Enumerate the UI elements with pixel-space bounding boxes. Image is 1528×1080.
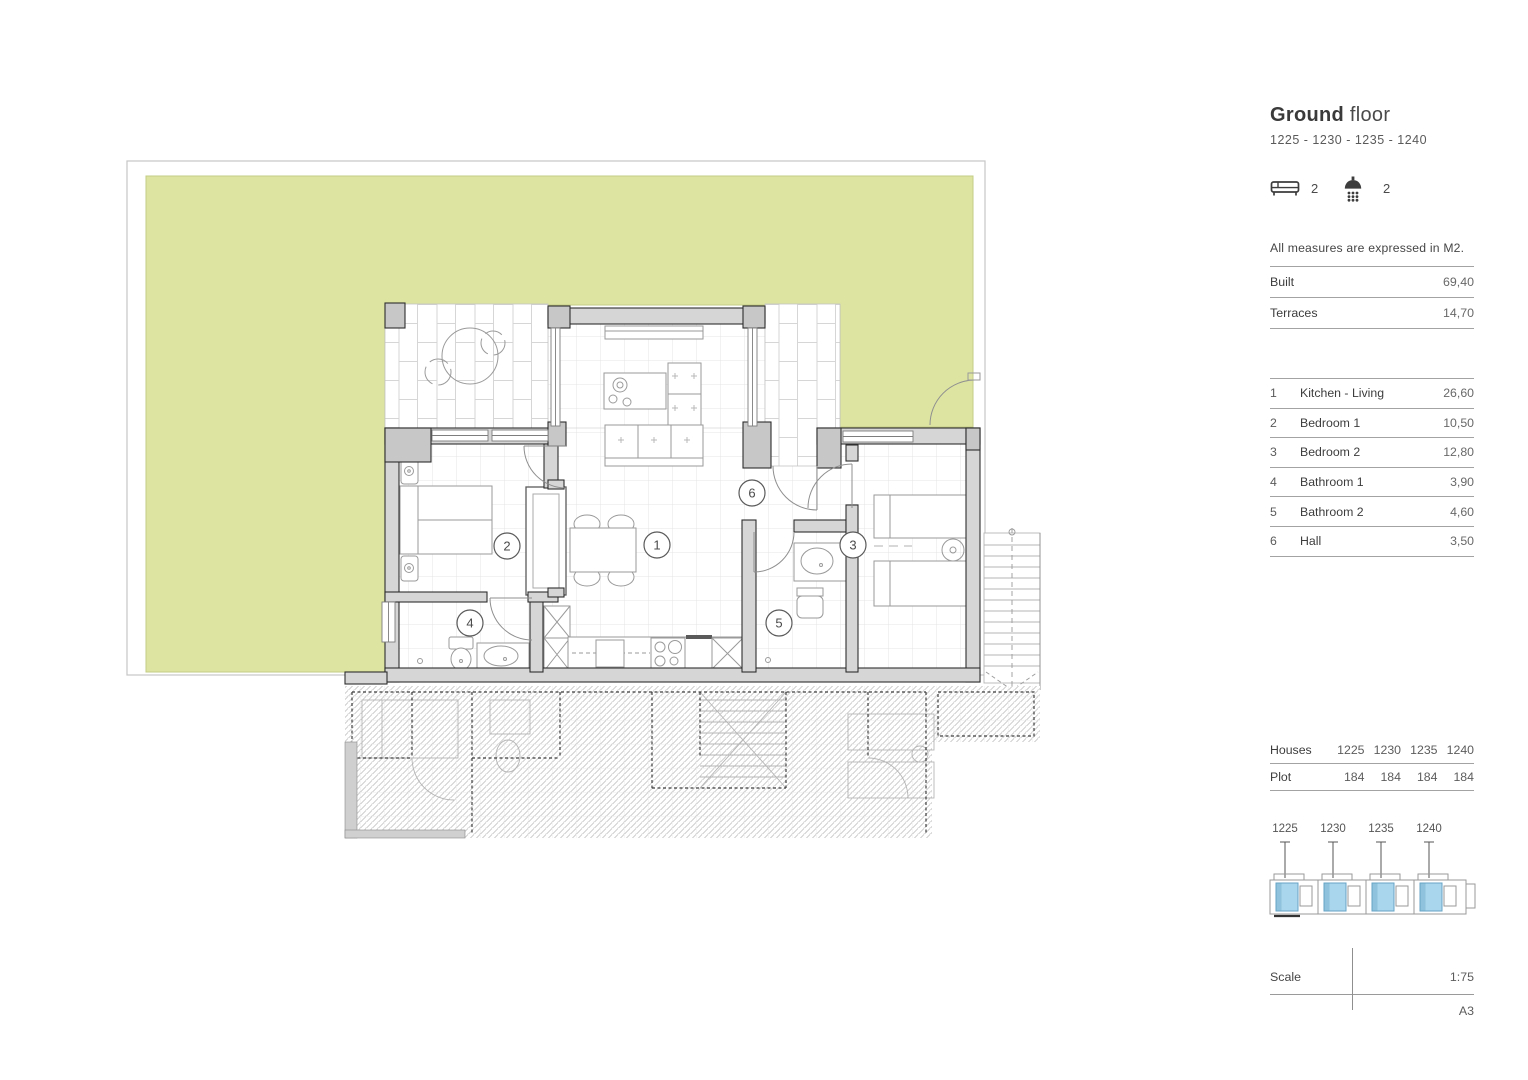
room-row: 5 Bathroom 2 4,60	[1270, 497, 1474, 527]
title-bold: Ground	[1270, 104, 1344, 126]
room-marker-1: 1	[653, 538, 660, 553]
room-marker-5: 5	[775, 616, 782, 631]
site-leader-lines	[1280, 842, 1434, 878]
room-marker-2: 2	[503, 539, 510, 554]
title-light: floor	[1350, 104, 1390, 126]
room-row: 4 Bathroom 1 3,90	[1270, 468, 1474, 498]
scale-divider	[1352, 948, 1353, 1010]
rooms-table: 1 Kitchen - Living 26,60 2 Bedroom 1 10,…	[1270, 378, 1474, 557]
room-row: 2 Bedroom 1 10,50	[1270, 409, 1474, 439]
scale-block: Scale 1:75 A3	[1270, 960, 1474, 1030]
site-label-1230: 1230	[1320, 823, 1346, 835]
scale-value: 1:75	[1450, 970, 1474, 984]
summary-row-built: Built 69,40	[1270, 267, 1474, 298]
site-label-1225: 1225	[1272, 823, 1298, 835]
bedrooms-count: 2	[1311, 181, 1318, 196]
room-marker-6: 6	[748, 486, 755, 501]
room-marker-3: 3	[849, 538, 856, 553]
features-row: 2 2	[1270, 176, 1474, 202]
page-title: Ground floor	[1270, 104, 1474, 126]
site-key-plan: 1225 1230 1235 1240	[1264, 820, 1480, 926]
site-label-1235: 1235	[1368, 823, 1394, 835]
scale-label: Scale	[1270, 970, 1301, 984]
adjacent-unit-hatched	[345, 686, 1040, 838]
houses-table: Houses 1225 1230 1235 1240 Plot 184 184 …	[1270, 737, 1474, 791]
plot-row: Plot 184 184 184 184	[1270, 764, 1474, 791]
sheet-size: A3	[1270, 995, 1474, 1018]
site-label-1240: 1240	[1416, 823, 1442, 835]
summary-row-terraces: Terraces 14,70	[1270, 298, 1474, 329]
room-row: 3 Bedroom 2 12,80	[1270, 438, 1474, 468]
room-row: 1 Kitchen - Living 26,60	[1270, 379, 1474, 409]
floorplan-sheet: { "colors": { "terrace_green": "#dde4a2"…	[0, 0, 1528, 1080]
info-sidebar: Ground floor 1225 - 1230 - 1235 - 1240 2…	[1270, 104, 1474, 1054]
houses-row: Houses 1225 1230 1235 1240	[1270, 737, 1474, 764]
bed-icon	[1270, 178, 1300, 198]
measures-note: All measures are expressed in M2.	[1270, 241, 1464, 255]
exterior-stairs	[984, 528, 1040, 700]
site-highlight-units	[1276, 883, 1442, 911]
bathrooms-count: 2	[1383, 181, 1390, 196]
unit-numbers: 1225 - 1230 - 1235 - 1240	[1270, 133, 1474, 147]
summary-table: Built 69,40 Terraces 14,70	[1270, 266, 1474, 329]
room-marker-4: 4	[466, 616, 473, 631]
shower-icon	[1341, 176, 1365, 202]
room-row: 6 Hall 3,50	[1270, 527, 1474, 557]
